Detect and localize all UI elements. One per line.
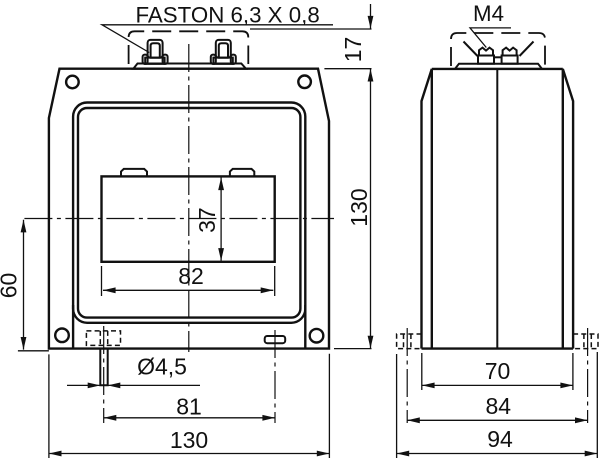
- svg-text:130: 130: [346, 188, 372, 226]
- svg-text:17: 17: [340, 37, 366, 63]
- svg-text:FASTON 6,3 X 0,8: FASTON 6,3 X 0,8: [136, 3, 320, 28]
- svg-text:82: 82: [178, 263, 204, 289]
- svg-text:84: 84: [486, 393, 512, 419]
- svg-text:Ø4,5: Ø4,5: [137, 354, 187, 380]
- svg-text:94: 94: [487, 426, 513, 452]
- svg-text:60: 60: [0, 273, 21, 299]
- svg-text:37: 37: [194, 207, 220, 233]
- svg-text:M4: M4: [473, 1, 504, 26]
- svg-text:70: 70: [485, 358, 511, 384]
- svg-text:81: 81: [176, 394, 202, 420]
- svg-text:130: 130: [170, 427, 208, 453]
